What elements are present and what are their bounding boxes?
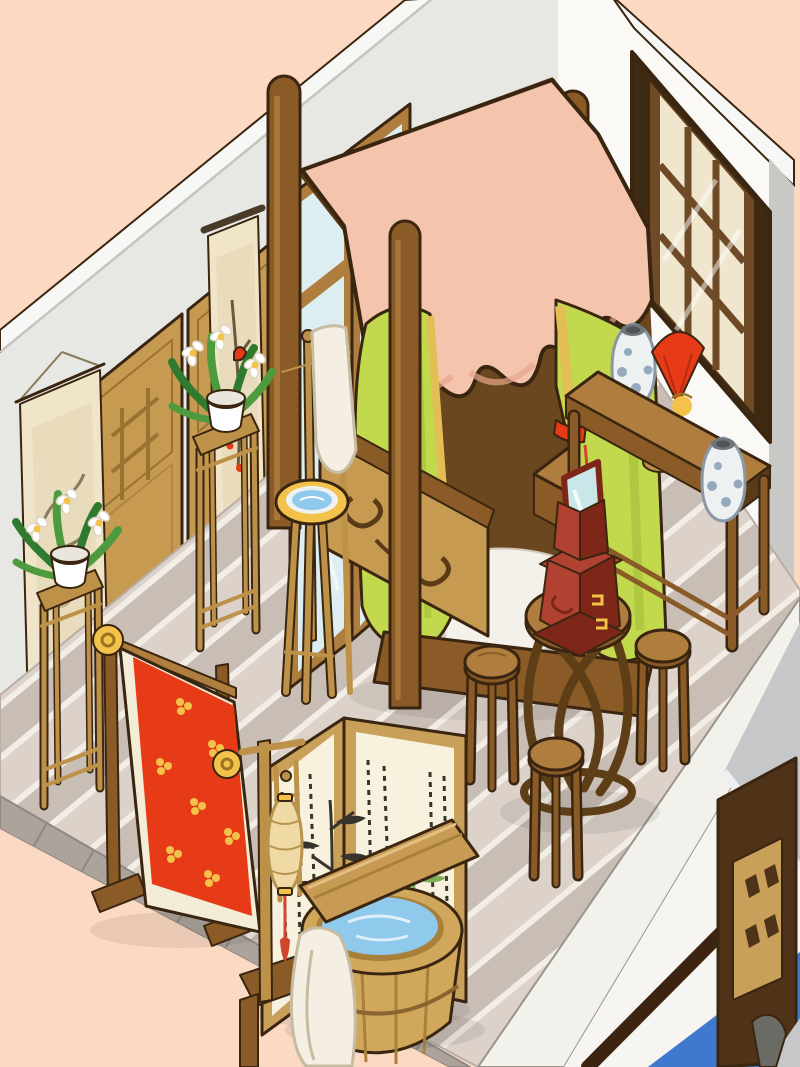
bed-post-left bbox=[268, 76, 300, 528]
lantern bbox=[268, 797, 302, 893]
bed-post-front bbox=[390, 221, 420, 708]
game-screenshot bbox=[0, 0, 800, 1067]
bath-towel[interactable] bbox=[291, 928, 355, 1066]
wall-cut-edge bbox=[769, 158, 794, 612]
room-scene bbox=[0, 0, 800, 1067]
basin-water bbox=[292, 490, 332, 510]
stool-1[interactable] bbox=[465, 646, 519, 788]
stool-2[interactable] bbox=[636, 630, 690, 768]
jar-2[interactable] bbox=[702, 438, 745, 521]
stool-3[interactable] bbox=[529, 738, 583, 884]
